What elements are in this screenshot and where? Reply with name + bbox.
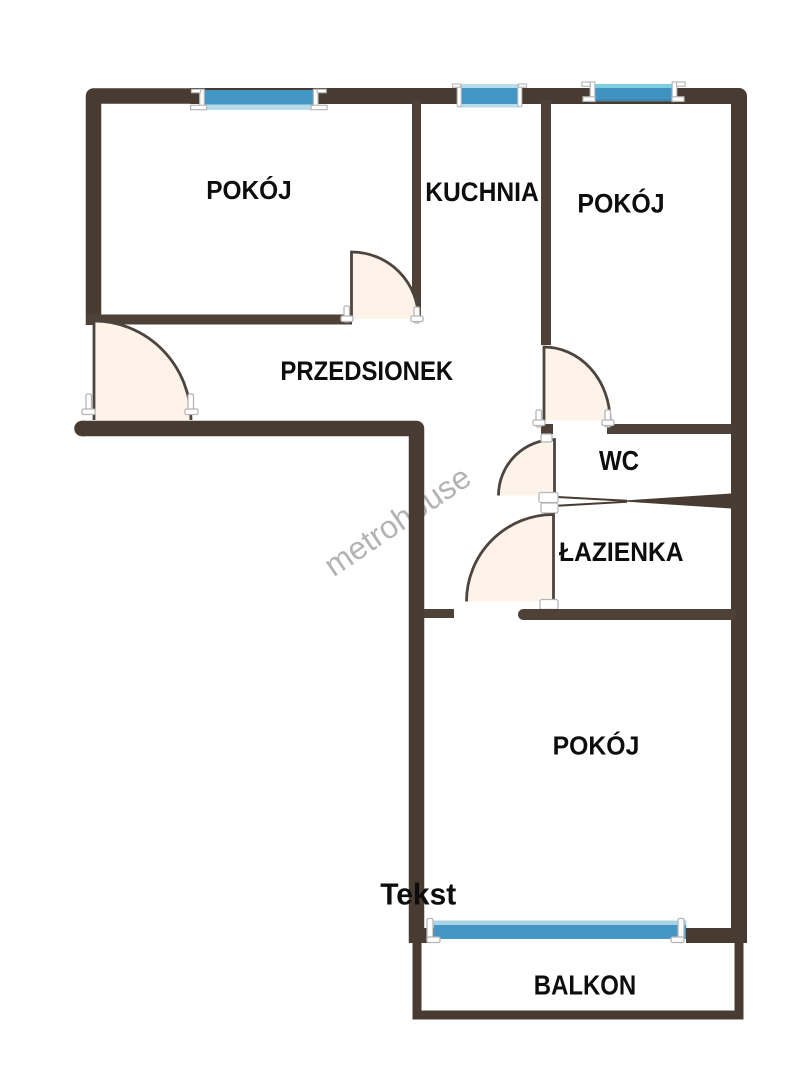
svg-text:PRZEDSIONEK: PRZEDSIONEK [280,357,453,387]
svg-text:metrohouse: metrohouse [317,459,477,584]
svg-text:POKÓJ: POKÓJ [553,730,640,761]
svg-text:Tekst: Tekst [380,877,456,912]
svg-text:ŁAZIENKA: ŁAZIENKA [559,538,684,567]
svg-text:WC: WC [599,444,639,476]
svg-text:KUCHNIA: KUCHNIA [425,178,538,207]
svg-text:POKÓJ: POKÓJ [577,188,664,219]
svg-text:POKÓJ: POKÓJ [206,174,292,205]
svg-text:BALKON: BALKON [534,969,636,1001]
